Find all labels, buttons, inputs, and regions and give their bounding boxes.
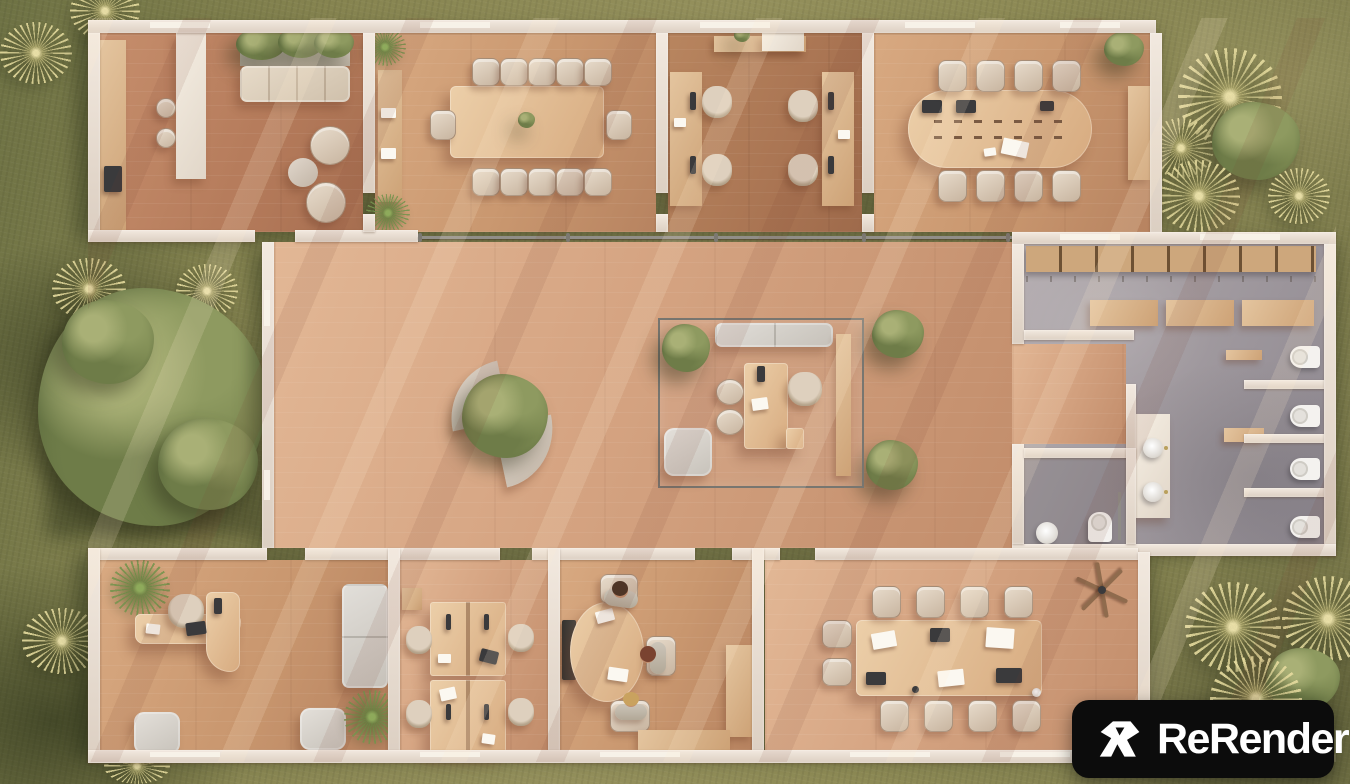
top-band-south-wall xyxy=(88,230,255,242)
toilet xyxy=(1290,346,1320,368)
hall-floor xyxy=(274,242,1012,548)
laptop xyxy=(866,672,886,685)
rail-post xyxy=(862,233,866,242)
desk-papers xyxy=(838,130,850,139)
conference-chair xyxy=(916,586,945,618)
window xyxy=(264,470,270,500)
wall-credenza xyxy=(1128,86,1150,180)
task-chair xyxy=(788,154,818,186)
monitor xyxy=(214,598,222,614)
conference-chair xyxy=(606,110,632,140)
office-plant xyxy=(662,324,710,372)
laptop xyxy=(996,668,1022,683)
corridor-floor xyxy=(1012,344,1126,444)
logo-text: ReRender xyxy=(1157,718,1348,761)
conference-chair xyxy=(872,586,901,618)
window xyxy=(600,752,680,757)
desk-papers xyxy=(146,623,161,634)
window xyxy=(1060,234,1120,240)
desk-papers xyxy=(481,733,495,745)
room-divider xyxy=(388,548,400,757)
window xyxy=(850,752,930,757)
locker-hooks xyxy=(1026,276,1316,282)
stall-partition xyxy=(1244,434,1324,443)
wall-desk xyxy=(670,72,702,206)
south-band-north-wall xyxy=(815,548,1138,560)
rail-post xyxy=(566,233,570,242)
window xyxy=(1060,22,1120,28)
conference-chair xyxy=(556,168,584,196)
task-chair xyxy=(406,626,432,654)
grab-rail xyxy=(1118,492,1121,540)
conference-chair xyxy=(822,620,852,648)
executive-chair xyxy=(788,372,822,406)
locker-bench xyxy=(1166,300,1234,326)
kitchen-island xyxy=(176,33,206,179)
conference-chair xyxy=(880,700,909,732)
sideboard-decor xyxy=(381,108,396,118)
large-tree-lobe xyxy=(62,300,154,384)
top-band-south-wall xyxy=(295,230,418,242)
task-chair xyxy=(788,90,818,122)
conference-chair xyxy=(1004,586,1033,618)
office-sofa xyxy=(342,584,388,688)
monitor xyxy=(828,156,834,174)
conference-chair xyxy=(976,60,1005,92)
papers xyxy=(937,669,965,688)
locker-corridor-wall xyxy=(1024,330,1134,340)
conference-chair xyxy=(1014,170,1043,202)
person-hair-dark xyxy=(612,581,628,596)
desk-papers xyxy=(438,654,451,663)
rerender-mark-icon xyxy=(1098,717,1142,761)
cooktop xyxy=(104,166,122,192)
planter-tree xyxy=(866,440,918,490)
corner-plant xyxy=(1104,32,1144,66)
west-wall-south xyxy=(88,548,100,762)
room-divider xyxy=(363,214,375,232)
bar-stool xyxy=(156,98,176,118)
conference-chair xyxy=(960,586,989,618)
lounge-bench-sofa xyxy=(240,66,350,102)
conference-chair xyxy=(500,58,528,86)
south-band-north-wall xyxy=(88,548,267,560)
corner-bench xyxy=(638,730,730,750)
laptop xyxy=(956,100,976,113)
conference-chair xyxy=(1012,700,1041,732)
wc-toilet xyxy=(1088,512,1112,542)
conference-chair xyxy=(976,170,1005,202)
wing-east-wall xyxy=(1324,244,1336,556)
window xyxy=(150,22,210,28)
conference-chair xyxy=(528,168,556,196)
room-divider xyxy=(656,33,668,193)
rail-post xyxy=(418,233,422,242)
desk-monitor xyxy=(757,366,765,382)
window xyxy=(150,752,220,757)
coffee-cup xyxy=(1032,688,1041,697)
armchair xyxy=(134,712,180,754)
desk-papers xyxy=(674,118,686,127)
vanity-wall xyxy=(1126,384,1136,448)
toilet xyxy=(1290,516,1320,538)
locker-bench xyxy=(1090,300,1158,326)
monitor xyxy=(484,704,489,720)
rail-post xyxy=(1006,233,1010,242)
lounge-chair xyxy=(664,428,712,476)
monitor xyxy=(690,156,696,174)
conference-chair xyxy=(472,168,500,196)
monitor xyxy=(446,704,451,720)
north-wall xyxy=(88,20,1156,33)
monitor xyxy=(484,614,489,630)
sideboard xyxy=(378,70,402,202)
task-chair xyxy=(406,700,432,728)
wc-north-wall xyxy=(1024,448,1136,458)
device xyxy=(1040,101,1054,111)
stall-partition xyxy=(1244,488,1324,497)
washbasin xyxy=(1143,482,1163,502)
bar-stool xyxy=(156,128,176,148)
device xyxy=(930,628,950,642)
faucet xyxy=(1164,490,1168,494)
conference-chair xyxy=(472,58,500,86)
monitor xyxy=(690,92,696,110)
locker-bench xyxy=(1242,300,1314,326)
wall-desk xyxy=(822,72,854,206)
conference-chair xyxy=(938,60,967,92)
window xyxy=(420,752,480,757)
round-lounge-chair xyxy=(306,182,346,223)
toilet xyxy=(1290,405,1320,427)
room-divider xyxy=(548,548,560,757)
room-divider xyxy=(656,214,668,232)
conference-chair xyxy=(924,700,953,732)
conference-chair xyxy=(1052,60,1081,92)
hall-west-wall xyxy=(262,242,274,548)
sideboard-decor xyxy=(381,148,396,159)
desk-cluster xyxy=(430,602,506,676)
south-band-north-wall xyxy=(305,548,400,560)
table-plant xyxy=(518,112,535,128)
office-sofa xyxy=(715,323,833,347)
planter-tree xyxy=(872,310,924,358)
window xyxy=(420,22,490,28)
corner-bench xyxy=(726,645,752,737)
desk-return xyxy=(786,428,804,449)
window xyxy=(1200,234,1280,240)
yucca-plant xyxy=(1268,168,1330,224)
room-divider xyxy=(862,33,874,193)
task-chair xyxy=(702,154,732,186)
window xyxy=(264,290,270,326)
window xyxy=(905,22,975,28)
washbasin xyxy=(1143,438,1163,458)
conference-chair xyxy=(938,170,967,202)
conference-chair xyxy=(1052,170,1081,202)
office-palm xyxy=(110,560,170,616)
coffee-table xyxy=(288,158,318,187)
yucca-plant xyxy=(1158,160,1240,232)
yucca-plant xyxy=(0,22,72,84)
task-chair xyxy=(508,624,534,652)
east-wall-north xyxy=(1150,33,1162,232)
conference-chair xyxy=(1014,60,1043,92)
guest-stool xyxy=(716,409,744,435)
locker-cubbies xyxy=(1026,246,1316,272)
faucet xyxy=(1164,446,1168,450)
laptop xyxy=(922,100,942,113)
table-cable-tray xyxy=(934,120,1066,123)
restroom-bench xyxy=(1226,350,1262,360)
floorplan-render: ReRender xyxy=(0,0,1350,784)
round-lounge-chair xyxy=(310,126,350,165)
ceiling-fan-hub xyxy=(1098,586,1106,594)
monitor xyxy=(828,92,834,110)
vanity-counter xyxy=(1136,414,1170,518)
window xyxy=(1000,752,1070,757)
room-divider xyxy=(363,33,375,193)
task-chair xyxy=(508,698,534,726)
conference-chair xyxy=(584,58,612,86)
armchair xyxy=(300,708,346,750)
wing-west-wall xyxy=(1012,244,1024,344)
window xyxy=(700,22,770,28)
conference-chair xyxy=(528,58,556,86)
room-divider xyxy=(752,548,764,757)
west-wall-north xyxy=(88,33,100,232)
kitchen-counter xyxy=(100,40,126,232)
south-band-north-wall xyxy=(400,548,500,560)
monitor xyxy=(446,614,451,630)
table-cable-tray xyxy=(934,136,1066,139)
person-hair-blond xyxy=(623,692,639,706)
side-bench xyxy=(836,334,851,476)
conference-chair xyxy=(500,168,528,196)
conference-chair xyxy=(430,110,456,140)
papers xyxy=(985,627,1014,649)
conference-chair xyxy=(968,700,997,732)
large-tree-lobe xyxy=(158,418,258,510)
laptop xyxy=(185,621,207,637)
papers xyxy=(607,667,629,683)
wc-sink xyxy=(1036,522,1058,544)
guest-stool xyxy=(716,379,744,405)
papers xyxy=(984,147,997,157)
wing-west-wall xyxy=(1012,444,1024,544)
conference-chair xyxy=(822,658,852,686)
task-chair xyxy=(702,86,732,118)
sideboard xyxy=(402,588,422,610)
stall-partition xyxy=(1244,380,1324,389)
wc-east-wall xyxy=(1126,448,1136,544)
desk-papers xyxy=(751,397,769,411)
south-band-north-wall xyxy=(560,548,695,560)
conference-chair xyxy=(584,168,612,196)
person-hair-auburn xyxy=(640,646,656,662)
conference-chair xyxy=(556,58,584,86)
room-divider xyxy=(862,214,874,232)
toilet xyxy=(1290,458,1320,480)
indoor-tree xyxy=(462,374,548,458)
curved-desk-return xyxy=(206,592,240,672)
whiteboard xyxy=(762,33,804,51)
rail-post xyxy=(714,233,718,242)
rerender-logo-badge: ReRender xyxy=(1072,700,1334,778)
coffee-cup xyxy=(912,686,919,693)
